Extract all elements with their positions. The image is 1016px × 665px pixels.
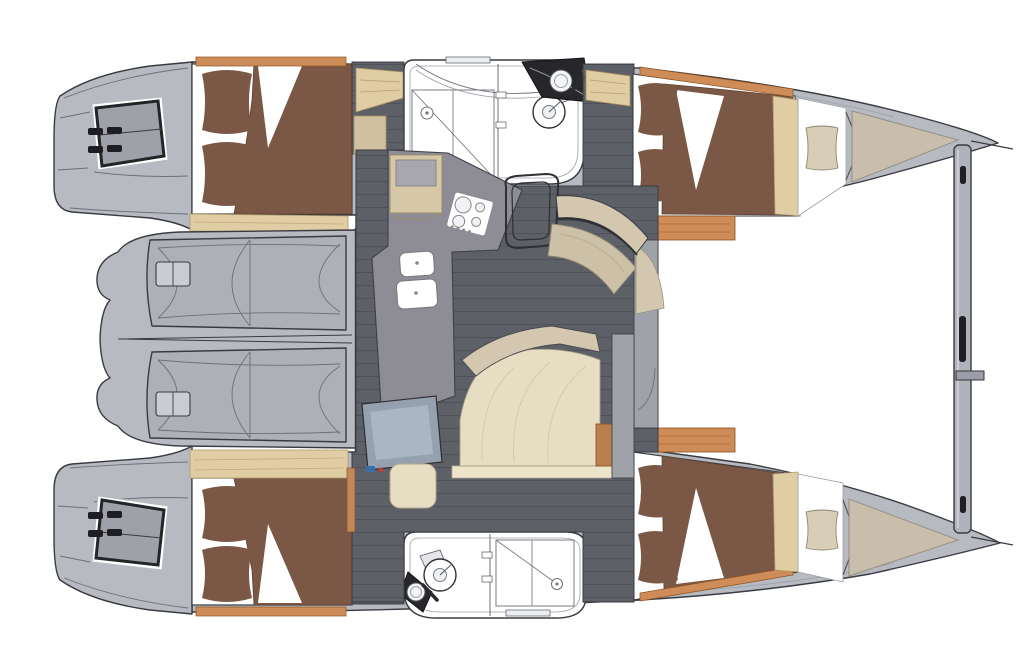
hinge — [482, 576, 492, 582]
bridle-bracket — [956, 371, 984, 380]
pillow — [202, 546, 252, 602]
fridge-top — [396, 160, 436, 186]
chart-table-panel — [370, 405, 433, 460]
foot-locker — [646, 216, 735, 240]
beam-fitting — [960, 496, 966, 513]
drain-dot — [415, 261, 419, 265]
aft-cabin-window — [96, 101, 164, 166]
bow-tip-lines — [971, 141, 1013, 545]
catamaran-deck-plan — [0, 0, 1016, 665]
forward-crossbeam — [954, 141, 1013, 545]
pillow — [638, 465, 678, 518]
beam-fitting — [959, 316, 966, 362]
drain-dot — [414, 291, 418, 295]
forepeak-pillow — [806, 510, 838, 550]
sink-icon — [550, 70, 572, 92]
cleat-icon — [107, 127, 122, 134]
pillow — [202, 142, 252, 206]
drain-dot — [556, 583, 559, 586]
winch-port — [156, 262, 190, 286]
hinge — [482, 552, 492, 558]
beam-fitting — [960, 166, 966, 184]
cleat-icon — [88, 146, 103, 153]
forepeak-pillow — [806, 126, 838, 170]
starboard-transom-steps — [54, 446, 192, 614]
wood-pillar — [347, 468, 355, 532]
starboard-aft-cabin — [190, 450, 352, 616]
port-fwd-steps — [586, 70, 630, 106]
wood-trim — [596, 424, 614, 466]
drain-dot — [425, 111, 428, 114]
deck-plan-canvas — [0, 0, 1016, 665]
port-aft-companionway — [352, 62, 404, 154]
foot-locker — [646, 428, 735, 452]
lounge-base-strip — [452, 466, 612, 478]
port-aft-cabin — [190, 57, 352, 233]
starboard-bathroom — [400, 532, 586, 618]
cleat-icon — [107, 529, 122, 536]
hinge — [496, 92, 506, 98]
cleat-icon — [107, 511, 122, 518]
instrument-chip — [366, 466, 375, 472]
chart-table-stool — [390, 464, 436, 508]
foot-shelf — [773, 472, 800, 572]
cleat-icon — [107, 145, 122, 152]
pillow — [638, 531, 678, 584]
lounge-side-wall — [612, 334, 634, 478]
pillow — [202, 486, 252, 542]
aft-cockpit — [97, 228, 360, 452]
pillow — [202, 70, 252, 134]
lower-step — [354, 116, 386, 154]
towel-bar — [506, 610, 550, 616]
winch-starboard — [156, 392, 190, 416]
instrument-dot — [379, 468, 384, 473]
wood-shelf — [196, 57, 346, 66]
hinge — [496, 122, 506, 128]
foot-shelf — [190, 450, 348, 478]
wood-shelf — [196, 607, 346, 616]
pillow — [638, 83, 678, 136]
foot-shelf — [773, 96, 800, 216]
towel-bar — [446, 57, 490, 63]
cleat-icon — [88, 128, 103, 135]
cleat-icon — [88, 512, 103, 519]
port-transom-steps — [54, 62, 192, 230]
cleat-icon — [88, 530, 103, 537]
